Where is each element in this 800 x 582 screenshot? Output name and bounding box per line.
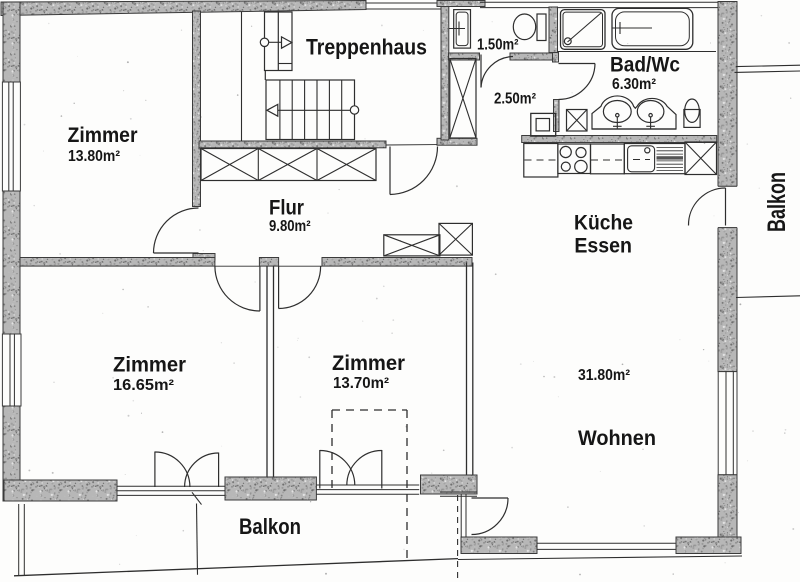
svg-text:16.65m²: 16.65m² [113, 377, 174, 394]
svg-text:13.70m²: 13.70m² [333, 375, 389, 392]
svg-text:Zimmer: Zimmer [68, 124, 138, 147]
svg-text:Essen: Essen [574, 235, 632, 258]
svg-text:Balkon: Balkon [763, 172, 791, 232]
svg-text:Zimmer: Zimmer [113, 354, 186, 377]
svg-text:2.50m²: 2.50m² [494, 91, 536, 108]
svg-text:Küche: Küche [574, 212, 633, 235]
svg-text:31.80m²: 31.80m² [578, 367, 630, 384]
svg-text:Flur: Flur [269, 197, 304, 220]
svg-text:9.80m²: 9.80m² [269, 218, 311, 235]
svg-text:13.80m²: 13.80m² [68, 148, 120, 165]
svg-text:6.30m²: 6.30m² [612, 76, 656, 93]
svg-text:Zimmer: Zimmer [332, 352, 405, 375]
svg-text:Balkon: Balkon [239, 514, 301, 539]
svg-text:1.50m²: 1.50m² [477, 37, 519, 54]
svg-text:Treppenhaus: Treppenhaus [306, 35, 427, 60]
svg-text:Wohnen: Wohnen [578, 427, 656, 450]
svg-text:Bad/Wc: Bad/Wc [610, 54, 680, 77]
